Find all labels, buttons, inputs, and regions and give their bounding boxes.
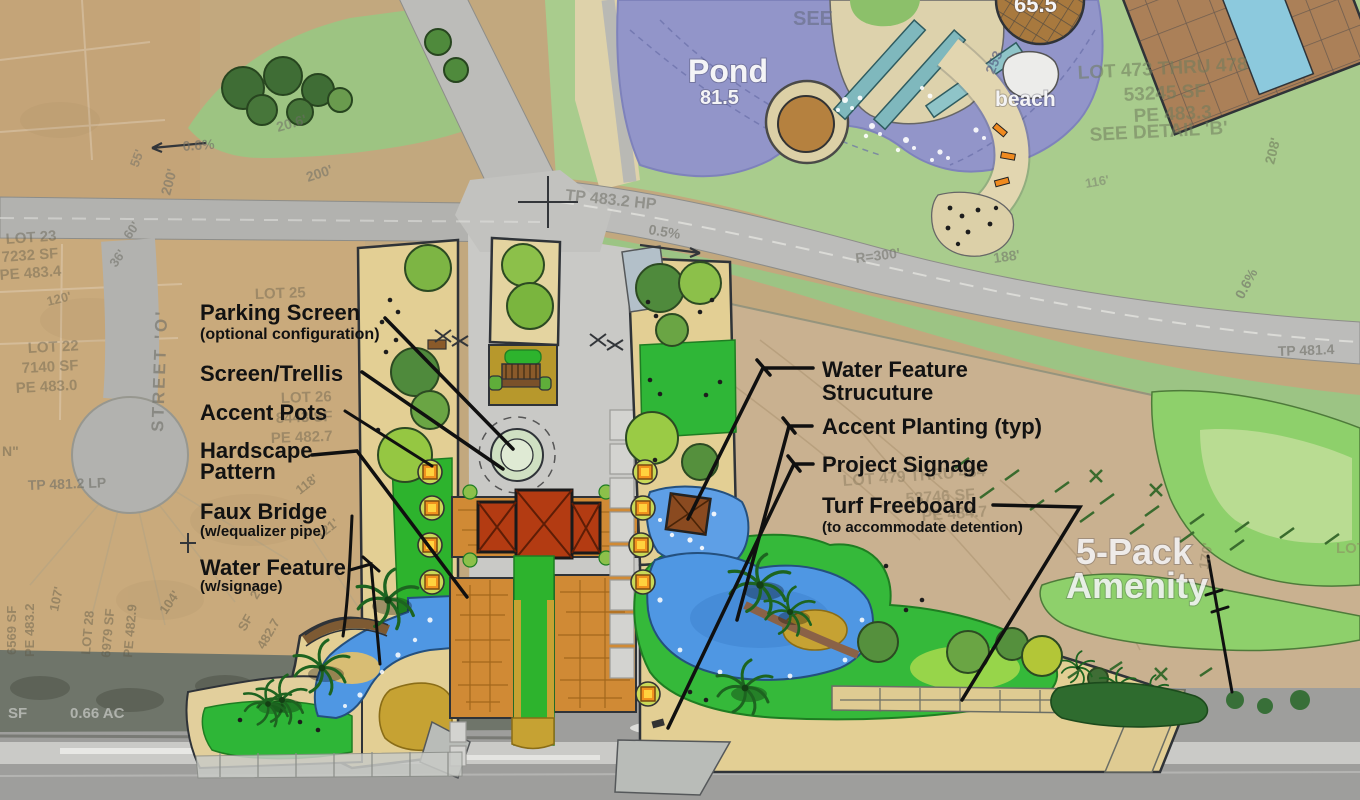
amenity-title-line2: Amenity bbox=[1066, 565, 1208, 606]
survey-text: 0.66 AC bbox=[70, 705, 125, 722]
beach-label: beach bbox=[995, 88, 1056, 111]
survey-text: LOT 22 bbox=[27, 337, 79, 357]
sidewalk-left bbox=[196, 752, 462, 778]
deck-elevation-label: 65.5 bbox=[1014, 0, 1057, 17]
callout-turf-freeboard: Turf Freeboard bbox=[822, 493, 977, 518]
median-shrub bbox=[505, 350, 541, 364]
survey-text: LOT bbox=[1336, 540, 1360, 557]
survey-text: PE 483.2 bbox=[22, 604, 37, 658]
median-tree-1 bbox=[502, 244, 544, 286]
median-bench-right bbox=[539, 377, 551, 390]
pond-island-core bbox=[778, 96, 834, 152]
callout-parking-screen: Parking Screen bbox=[200, 300, 360, 325]
callout-hardscape-2: Pattern bbox=[200, 459, 276, 484]
median-tree-2 bbox=[507, 283, 553, 329]
lawn-end-cap bbox=[512, 718, 554, 749]
lawn-edge-left bbox=[514, 600, 521, 718]
survey-text: SF bbox=[8, 705, 27, 722]
callout-wf-structure-2: Strucuture bbox=[822, 380, 933, 405]
callout-project-signage: Project Signage bbox=[822, 452, 988, 477]
pond-elevation-label: 81.5 bbox=[700, 87, 739, 109]
street-o bbox=[128, 240, 132, 400]
callout-parking-screen-sub: (optional configuration) bbox=[200, 326, 380, 343]
survey-text: 6569 SF bbox=[4, 606, 19, 655]
survey-text: SEE bbox=[793, 8, 833, 30]
site-plan-page: LOT 23 7232 SF PE 483.4 120' LOT 22 7140… bbox=[0, 0, 1360, 800]
water-feature-structure bbox=[666, 493, 711, 534]
site-plan-drawing: LOT 23 7232 SF PE 483.4 120' LOT 22 7140… bbox=[0, 0, 1360, 800]
callout-accent-pots: Accent Pots bbox=[200, 400, 327, 425]
callout-turf-freeboard-sub: (to accommodate detention) bbox=[822, 519, 1023, 536]
survey-text: TP 481.4 bbox=[1278, 341, 1335, 359]
callout-faux-bridge: Faux Bridge bbox=[200, 499, 327, 524]
callout-screen-trellis: Screen/Trellis bbox=[200, 361, 343, 386]
pond-label: Pond bbox=[688, 53, 768, 89]
median-bench-bar bbox=[502, 379, 540, 387]
median-bench-left bbox=[489, 376, 502, 390]
callout-water-feature: Water Feature bbox=[200, 555, 346, 580]
hardscape-block-left bbox=[450, 578, 514, 718]
callout-accent-planting: Accent Planting (typ) bbox=[822, 414, 1042, 439]
callout-wf-structure: Water Feature bbox=[822, 357, 968, 382]
lawn-edge-right bbox=[547, 600, 554, 718]
street-o-knuckle bbox=[72, 397, 188, 513]
survey-text: PE 483.0 bbox=[15, 377, 78, 397]
survey-text: 0.6% bbox=[182, 136, 215, 154]
callout-water-feature-sub: (w/signage) bbox=[200, 578, 283, 595]
callout-faux-bridge-sub: (w/equalizer pipe) bbox=[200, 523, 326, 540]
survey-text: N" bbox=[2, 443, 19, 459]
survey-text: TP 481.2 LP bbox=[28, 474, 107, 493]
survey-text: 7140 SF bbox=[21, 357, 79, 377]
